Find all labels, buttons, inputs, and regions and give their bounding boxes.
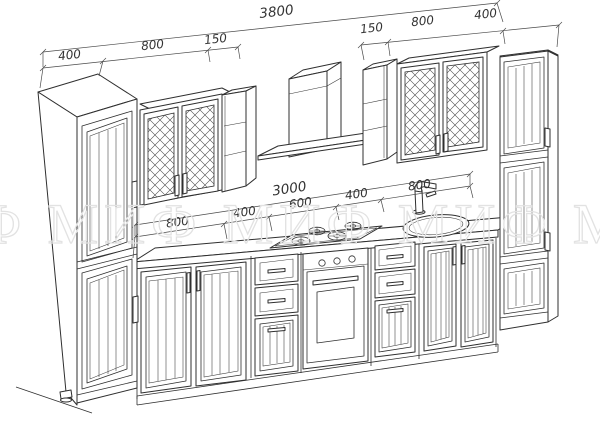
upper-left-wall-cabinets [140,86,256,205]
cabinet-foot [60,390,72,402]
open-shelf-unit-right [363,59,397,165]
drawer-unit-400-right [375,242,415,357]
door-handle [444,133,448,152]
door-handle [197,271,200,292]
dim-top-right-150: 150 [359,20,384,36]
dim-top-left-800: 800 [140,37,165,54]
door-handle [187,273,190,294]
sink-base-cabinet [424,240,493,351]
drawing-canvas: 3800 400 800 150 150 800 400 3000 800 40… [0,0,600,424]
dim-top-right-400: 400 [473,6,498,22]
dim-base-800-right: 800 [407,176,432,193]
dim-top-left-400: 400 [57,47,82,64]
watermark-text: МИФ МИФ МИФ МИФ МИФ [0,193,600,256]
base-cabinet-800-doors [141,262,246,393]
kitchen-elevation-drawing: 3800 400 800 150 150 800 400 3000 800 40… [0,0,600,424]
dim-top-total: 3800 [259,2,295,22]
oven [303,248,368,369]
right-tall-cabinet [500,50,558,330]
open-shelf-unit-left [222,86,256,192]
upper-right-wall-cabinets [363,46,499,165]
door-handle [133,296,138,323]
dim-top-left-150: 150 [203,31,228,48]
door-handle [545,128,550,147]
drawer-unit-400-left [255,254,298,376]
door-handle [183,173,187,194]
dim-top-right-800: 800 [410,13,435,29]
door-handle [436,135,440,154]
